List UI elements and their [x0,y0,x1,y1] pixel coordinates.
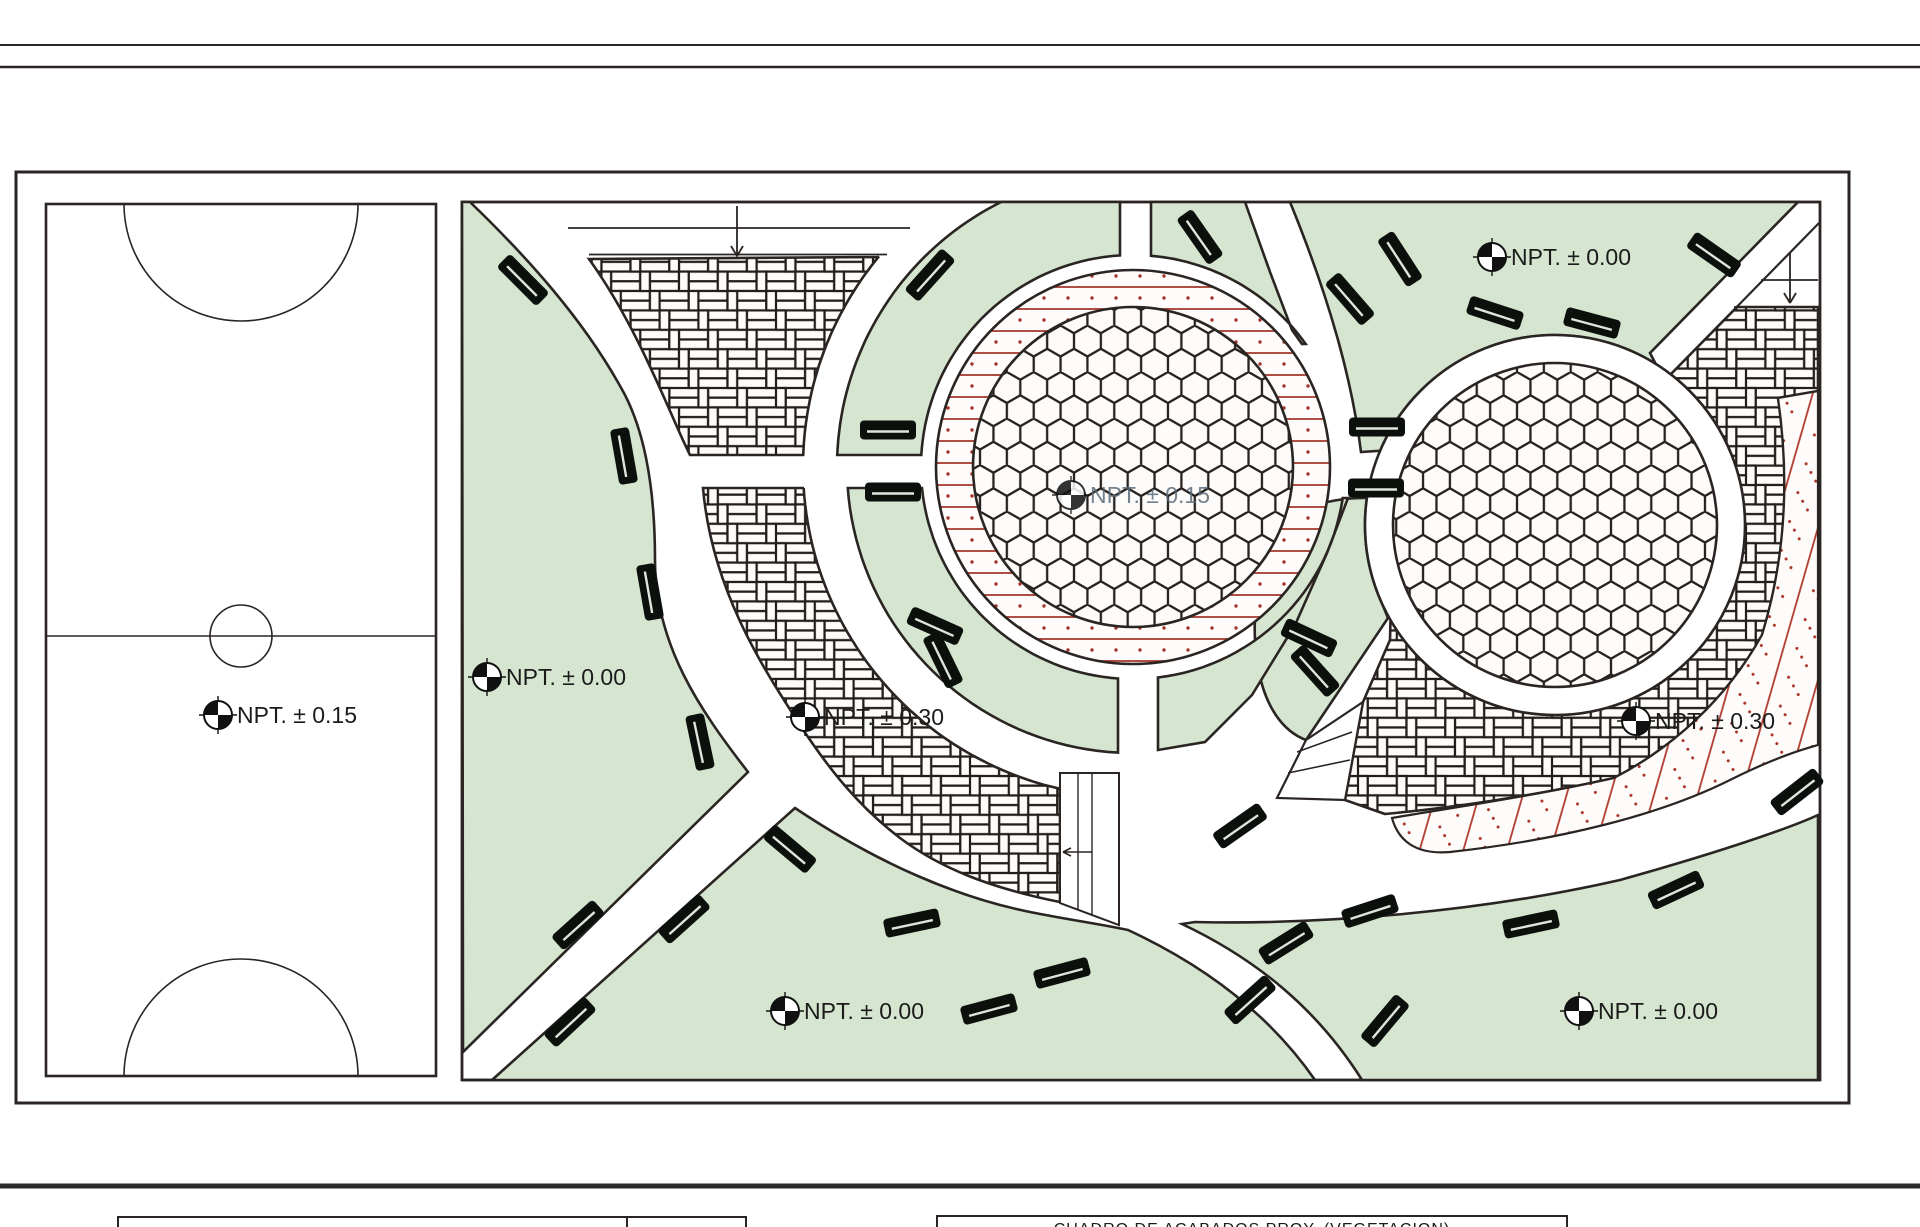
svg-text:NPT. ± 0.30: NPT. ± 0.30 [824,704,944,730]
svg-text:NPT. ± 0.00: NPT. ± 0.00 [1511,244,1631,270]
svg-text:NPT. ± 0.00: NPT. ± 0.00 [506,664,626,690]
svg-text:NPT. ± 0.00: NPT. ± 0.00 [804,998,924,1024]
svg-text:NPT. ± 0.15: NPT. ± 0.15 [237,702,357,728]
svg-text:NPT. ± 0.00: NPT. ± 0.00 [1598,998,1718,1024]
svg-text:CUADRO DE ACABADOS PROY. (VEGE: CUADRO DE ACABADOS PROY. (VEGETACION) [1054,1221,1450,1227]
svg-text:NPT. ± 0.30: NPT. ± 0.30 [1655,708,1775,734]
svg-text:NPT. ± 0.15: NPT. ± 0.15 [1090,482,1210,508]
